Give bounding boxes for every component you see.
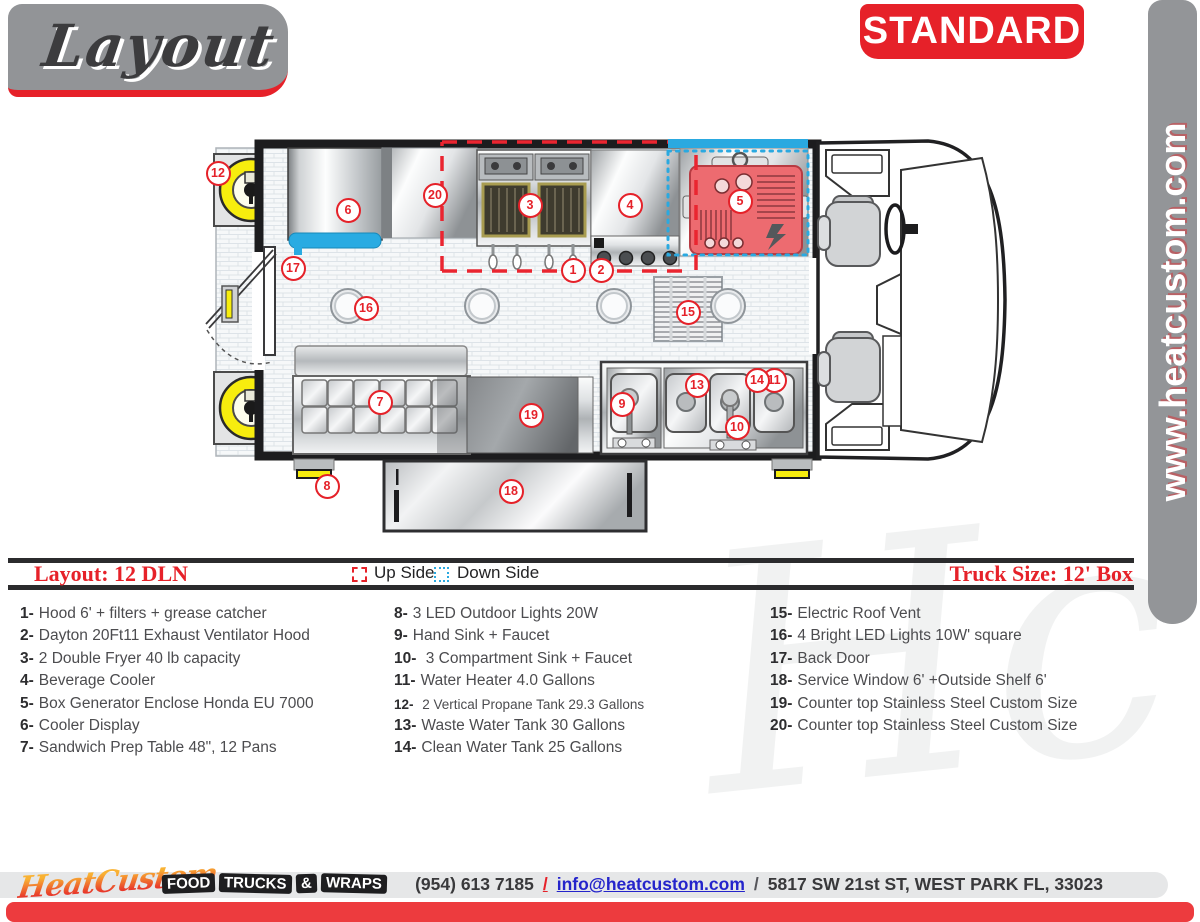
- plan-marker-8: 8: [315, 474, 340, 499]
- equipment-item-7: 7-Sandwich Prep Table 48", 12 Pans: [20, 739, 314, 755]
- floorplan-drawing: [0, 0, 1200, 922]
- website-url: www.heatcustom.com: [1152, 123, 1194, 502]
- equipment-column: 8-3 LED Outdoor Lights 20W9-Hand Sink + …: [394, 605, 644, 762]
- footer-bar: HeatCustom FOODTRUCKS&WRAPS (954) 613 71…: [0, 872, 1168, 898]
- equipment-item-11: 11-Water Heater 4.0 Gallons: [394, 672, 644, 688]
- equipment-item-18: 18-Service Window 6' +Outside Shelf 6': [770, 672, 1077, 688]
- plan-marker-13: 13: [685, 373, 710, 398]
- separator-slash: /: [543, 874, 548, 895]
- equipment-item-15: 15-Electric Roof Vent: [770, 605, 1077, 621]
- plan-marker-5: 5: [728, 189, 753, 214]
- plan-marker-19: 19: [519, 403, 544, 428]
- cooler-display: [288, 148, 382, 255]
- standard-badge: STANDARD: [860, 4, 1084, 59]
- website-rail: www.heatcustom.com: [1148, 0, 1197, 624]
- equipment-item-17: 17-Back Door: [770, 650, 1077, 666]
- plan-marker-20: 20: [423, 183, 448, 208]
- equipment-item-12: 12- 2 Vertical Propane Tank 29.3 Gallons: [394, 695, 644, 711]
- plan-marker-2: 2: [589, 258, 614, 283]
- plan-marker-6: 6: [336, 198, 361, 223]
- street-address: 5817 SW 21st ST, WEST PARK FL, 33023: [768, 874, 1103, 895]
- separator-slash: /: [754, 874, 759, 895]
- equipment-item-10: 10- 3 Compartment Sink + Faucet: [394, 650, 644, 666]
- plan-marker-18: 18: [499, 479, 524, 504]
- footer-contact: (954) 613 7185 / info@heatcustom.com / 5…: [415, 874, 1103, 895]
- equipment-column: 1-Hood 6' + filters + grease catcher2-Da…: [20, 605, 314, 762]
- plan-marker-3: 3: [518, 193, 543, 218]
- plan-marker-9: 9: [610, 392, 635, 417]
- email-link[interactable]: info@heatcustom.com: [557, 874, 745, 895]
- plan-marker-14: 14: [745, 368, 770, 393]
- layout-logo: Layout: [8, 4, 288, 97]
- page: { "header": { "logo_text": "Layout", "ba…: [0, 0, 1200, 922]
- plan-marker-15: 15: [676, 300, 701, 325]
- plan-marker-1: 1: [561, 258, 586, 283]
- equipment-item-5: 5-Box Generator Enclose Honda EU 7000: [20, 695, 314, 711]
- footer-red-bar: [6, 902, 1194, 922]
- equipment-item-19: 19-Counter top Stainless Steel Custom Si…: [770, 695, 1077, 711]
- truck-cab: [818, 141, 1005, 459]
- up-side-label: Up Side: [374, 563, 434, 583]
- layout-name-label: Layout: 12 DLN: [34, 561, 188, 587]
- down-side-bar: [668, 139, 808, 148]
- equipment-item-3: 3-2 Double Fryer 40 lb capacity: [20, 650, 314, 666]
- tagline-word: TRUCKS: [219, 873, 292, 894]
- equipment-item-20: 20-Counter top Stainless Steel Custom Si…: [770, 717, 1077, 733]
- equipment-item-1: 1-Hood 6' + filters + grease catcher: [20, 605, 314, 621]
- plan-marker-10: 10: [725, 415, 750, 440]
- tagline-word: &: [296, 874, 317, 894]
- tagline-word: FOOD: [162, 873, 216, 894]
- plan-marker-16: 16: [354, 296, 379, 321]
- equipment-item-8: 8-3 LED Outdoor Lights 20W: [394, 605, 644, 621]
- truck-size-label: Truck Size: 12' Box: [949, 561, 1133, 587]
- layout-logo-text: Layout: [3, 4, 281, 80]
- equipment-item-6: 6-Cooler Display: [20, 717, 314, 733]
- equipment-item-16: 16-4 Bright LED Lights 10W' square: [770, 627, 1077, 643]
- plan-marker-7: 7: [368, 390, 393, 415]
- up-side-swatch: [352, 567, 367, 582]
- equipment-item-13: 13-Waste Water Tank 30 Gallons: [394, 717, 644, 733]
- tagline-word: WRAPS: [320, 873, 386, 894]
- down-side-label: Down Side: [457, 563, 539, 583]
- equipment-item-2: 2-Dayton 20Ft11 Exhaust Ventilator Hood: [20, 627, 314, 643]
- footer-tagline: FOODTRUCKS&WRAPS: [162, 874, 391, 893]
- equipment-column: 15-Electric Roof Vent16-4 Bright LED Lig…: [770, 605, 1077, 739]
- plan-marker-17: 17: [281, 256, 306, 281]
- equipment-item-14: 14-Clean Water Tank 25 Gallons: [394, 739, 644, 755]
- plan-marker-12: 12: [206, 161, 231, 186]
- plan-marker-4: 4: [618, 193, 643, 218]
- down-side-swatch: [434, 567, 449, 582]
- equipment-item-9: 9-Hand Sink + Faucet: [394, 627, 644, 643]
- counter-20-edge: [382, 148, 392, 238]
- phone-number: (954) 613 7185: [415, 874, 534, 895]
- equipment-item-4: 4-Beverage Cooler: [20, 672, 314, 688]
